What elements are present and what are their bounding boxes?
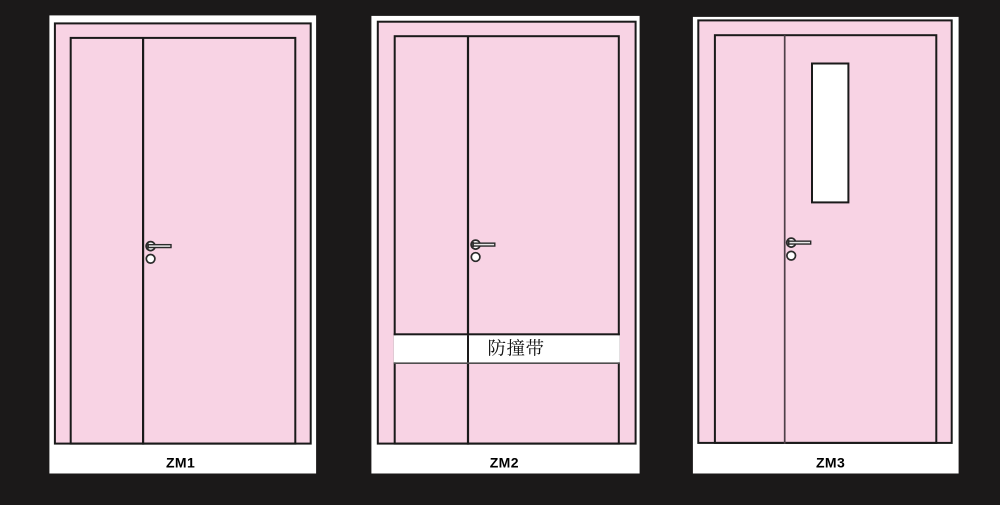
svg-text:ZM3: ZM3 — [816, 455, 845, 471]
svg-text:ZM1: ZM1 — [166, 455, 195, 471]
svg-text:ZM2: ZM2 — [490, 455, 519, 471]
